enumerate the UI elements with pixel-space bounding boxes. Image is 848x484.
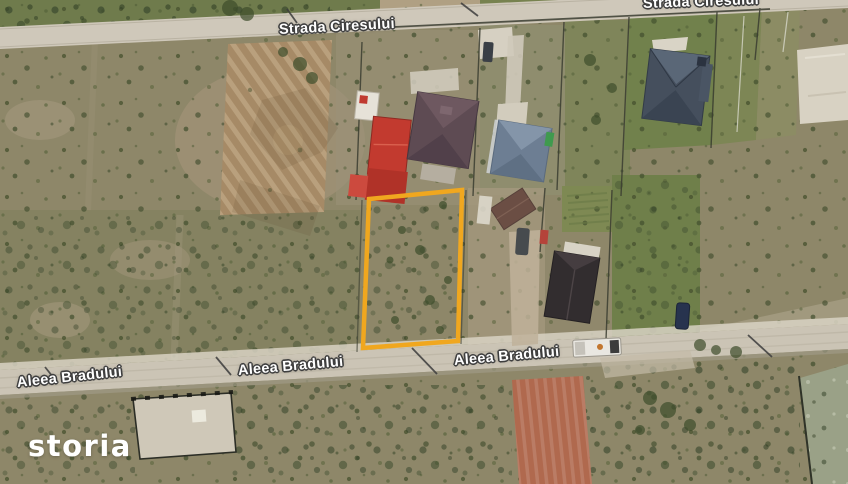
satellite-map[interactable]: Strada Ciresului Strada Ciresului Aleea … [0,0,848,484]
fenced-empty-lot [131,392,236,459]
slate-roof-house [486,119,555,182]
large-gray-roof-house [642,49,714,126]
red-object [539,230,548,245]
red-dirt-patch [512,376,592,484]
storia-logo: storia [28,429,132,463]
aerial-imagery [0,0,848,484]
